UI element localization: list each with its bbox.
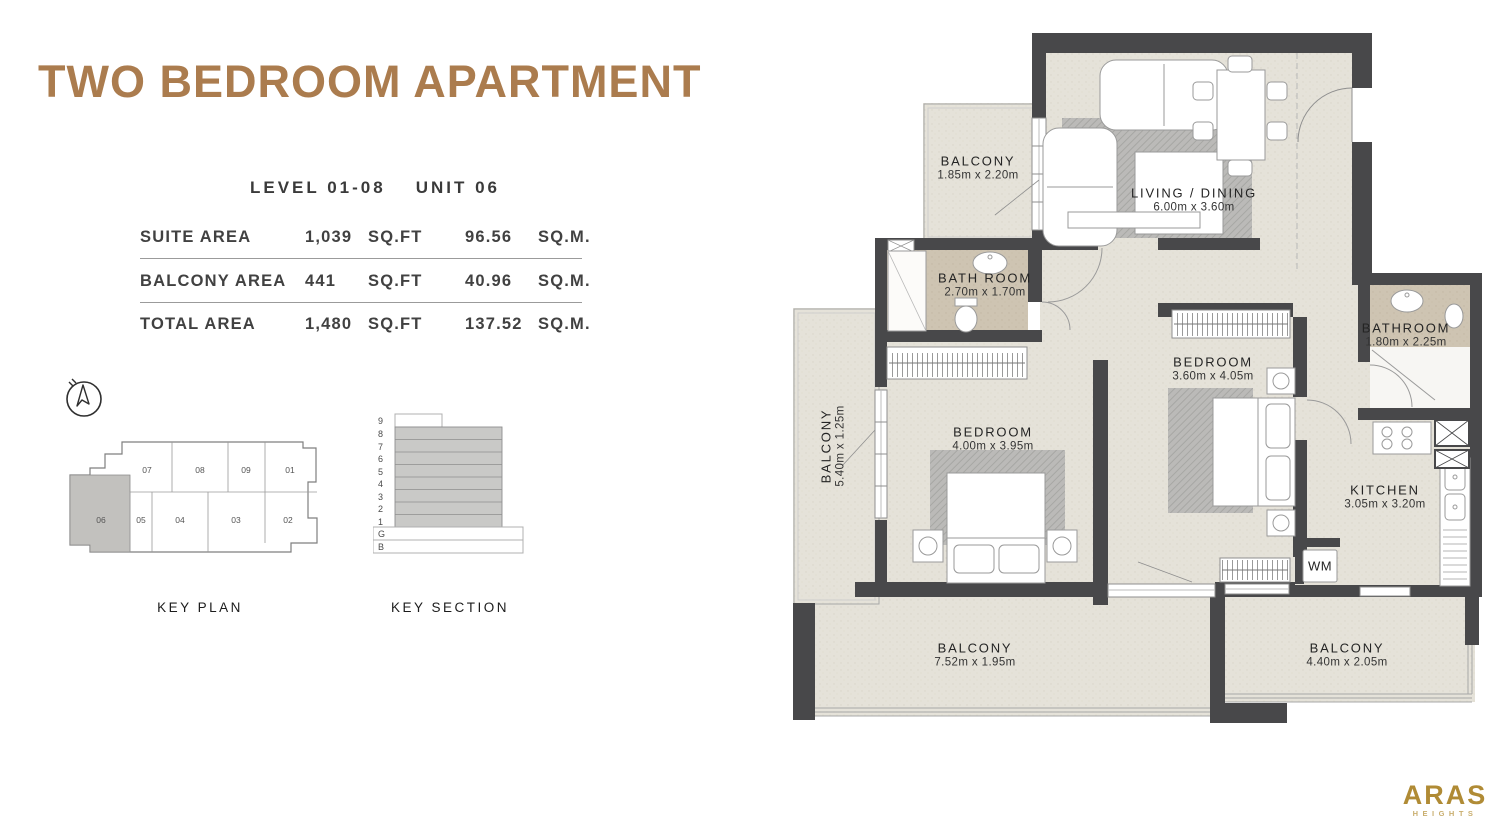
toilet: [955, 306, 977, 332]
floor-number: 3: [378, 492, 383, 502]
key-section-caption: KEY SECTION: [390, 600, 510, 615]
room-label-wm: WM: [1308, 559, 1332, 574]
unit-number: 09: [241, 465, 251, 475]
room-label-balcony-bottom1: BALCONY 7.52m x 1.95m: [934, 641, 1015, 670]
brand-logo: ARAS: [1402, 780, 1488, 811]
section-floor-b: [373, 540, 523, 553]
stove: [1373, 422, 1431, 454]
floor-number: 8: [378, 429, 383, 439]
sqft-unit: SQ.FT: [368, 315, 423, 334]
unit-number: 01: [285, 465, 295, 475]
floor-plan: [790, 30, 1490, 730]
north-arrow-icon: [60, 374, 106, 420]
unit-number: 04: [175, 515, 185, 525]
room-label-bathroom1: BATH ROOM 2.70m x 1.70m: [938, 271, 1032, 300]
bathroom2-shower-floor: [1370, 347, 1470, 408]
floor-number: G: [378, 529, 385, 539]
room-label-kitchen: KITCHEN 3.05m x 3.20m: [1344, 483, 1425, 512]
sqm-unit: SQ.M.: [538, 228, 591, 247]
key-section-diagram: 9 8 7 6 5 4 3 2 1 G B: [373, 408, 525, 558]
room-label-living-dining: LIVING / DINING 6.00m x 3.60m: [1131, 186, 1257, 215]
unit-number: 07: [142, 465, 152, 475]
section-highlighted-floors: [395, 427, 502, 527]
sqft-value: 441: [305, 272, 336, 291]
sqm-value: 40.96: [465, 272, 512, 291]
level-label: LEVEL 01-08: [250, 178, 386, 197]
key-plan-map: 07 08 09 01 06 05 04 03 02: [60, 430, 325, 565]
table-row-balcony: BALCONY AREA 441 SQ.FT 40.96 SQ.M.: [140, 272, 584, 294]
section-floor-g: [373, 527, 523, 540]
page-title: TWO BEDROOM APARTMENT: [38, 56, 701, 108]
bedroom1-closet: [887, 347, 1027, 379]
unit-number: 05: [136, 515, 146, 525]
brochure-page: TWO BEDROOM APARTMENT LEVEL 01-08UNIT 06…: [0, 0, 1500, 830]
floor-number: 2: [378, 504, 383, 514]
key-plan-highlight-unit-06: [70, 475, 130, 552]
sqm-value: 96.56: [465, 228, 512, 247]
floor-number: 5: [378, 467, 383, 477]
row-label: SUITE AREA: [140, 228, 251, 247]
row-label: TOTAL AREA: [140, 315, 256, 334]
floor-number: B: [378, 542, 384, 552]
unit-label: UNIT 06: [416, 178, 500, 197]
floor-number: 7: [378, 442, 383, 452]
room-label-bathroom2: BATHROOM 1.80m x 2.25m: [1362, 321, 1451, 350]
room-label-bedroom2: BEDROOM 3.60m x 4.05m: [1172, 355, 1253, 384]
table-row-suite: SUITE AREA 1,039 SQ.FT 96.56 SQ.M.: [140, 228, 584, 250]
sqm-unit: SQ.M.: [538, 272, 591, 291]
floor-number: 6: [378, 454, 383, 464]
key-plan-caption: KEY PLAN: [140, 600, 260, 615]
unit-number-highlighted: 06: [96, 515, 106, 525]
floor-number: 4: [378, 479, 383, 489]
table-divider: [140, 258, 582, 259]
sqft-unit: SQ.FT: [368, 228, 423, 247]
sqft-value: 1,480: [305, 315, 352, 334]
hall-closet: [1220, 558, 1290, 582]
room-label-balcony-bottom2: BALCONY 4.40m x 2.05m: [1306, 641, 1387, 670]
row-label: BALCONY AREA: [140, 272, 286, 291]
brand-logo-subtitle: HEIGHTS: [1402, 809, 1488, 818]
unit-number: 03: [231, 515, 241, 525]
bedroom2-closet: [1172, 310, 1290, 338]
sqm-value: 137.52: [465, 315, 523, 334]
sqft-unit: SQ.FT: [368, 272, 423, 291]
room-label-balcony-top: BALCONY 1.85m x 2.20m: [937, 154, 1018, 183]
floor-number: 1: [378, 517, 383, 527]
sqft-value: 1,039: [305, 228, 352, 247]
level-unit-line: LEVEL 01-08UNIT 06: [250, 178, 500, 198]
dining-table: [1217, 70, 1265, 160]
room-label-balcony-left: BALCONY 5.40m x 1.25m: [819, 405, 848, 486]
area-table: SUITE AREA 1,039 SQ.FT 96.56 SQ.M. BALCO…: [140, 220, 584, 340]
room-label-bedroom1: BEDROOM 4.00m x 3.95m: [952, 425, 1033, 454]
section-floor-9: [395, 414, 442, 427]
floor-number: 9: [378, 416, 383, 426]
entry-opening: [1352, 88, 1372, 142]
unit-number: 02: [283, 515, 293, 525]
kitchen-window: [1360, 587, 1410, 596]
table-row-total: TOTAL AREA 1,480 SQ.FT 137.52 SQ.M.: [140, 315, 584, 337]
unit-number: 08: [195, 465, 205, 475]
table-divider: [140, 302, 582, 303]
section-floor-numbers: 9 8 7 6 5 4 3 2 1 G B: [378, 416, 385, 552]
sqm-unit: SQ.M.: [538, 315, 591, 334]
